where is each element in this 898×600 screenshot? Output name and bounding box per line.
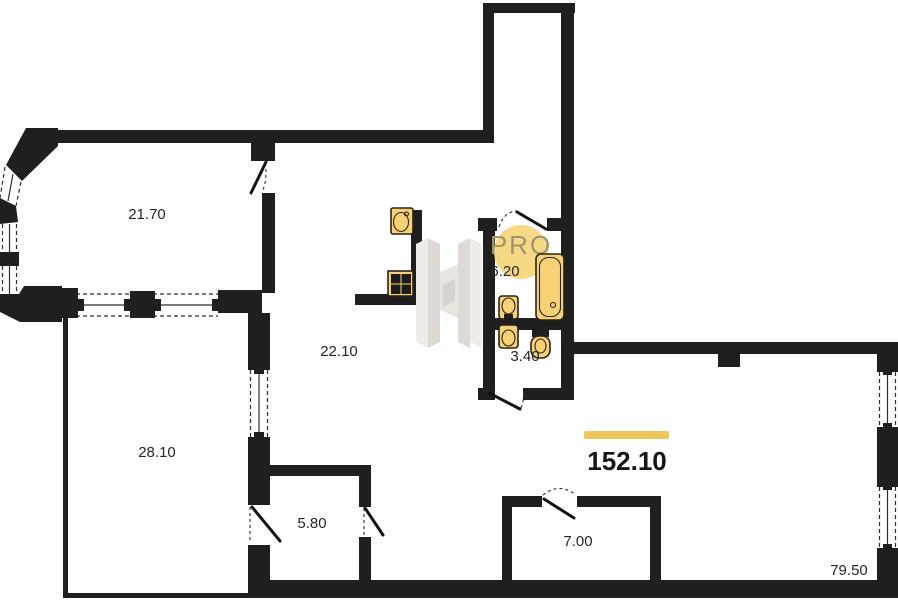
washbasin-icon (499, 325, 518, 348)
window (62, 288, 262, 318)
room-label-bay-living: 21.70 (128, 206, 166, 223)
pillar (718, 354, 740, 367)
room-label-storage: 5.80 (297, 515, 326, 532)
watermark-logo (416, 238, 482, 348)
total-area: 152.10 (584, 431, 669, 476)
floor-plan: PRO (0, 0, 898, 600)
total-area-value: 152.10 (587, 446, 667, 476)
room-label-wc: 3.40 (510, 348, 539, 365)
stove-icon (388, 271, 413, 296)
bathtub-icon (536, 254, 564, 320)
washbasin-icon (499, 296, 518, 321)
room-label-bedroom: 28.10 (138, 444, 176, 461)
room-label-kitchen-hall: 22.10 (320, 343, 358, 360)
room-label-living-area: 79.50 (830, 562, 868, 579)
floor-plan-drawing: PRO (0, 0, 898, 600)
kitchen-sink-icon (391, 208, 413, 234)
room-label-inner-room: 7.00 (563, 533, 592, 550)
bay-window (0, 128, 62, 322)
total-area-accent-bar (584, 431, 669, 439)
room-label-bathroom: 6.20 (490, 263, 519, 280)
